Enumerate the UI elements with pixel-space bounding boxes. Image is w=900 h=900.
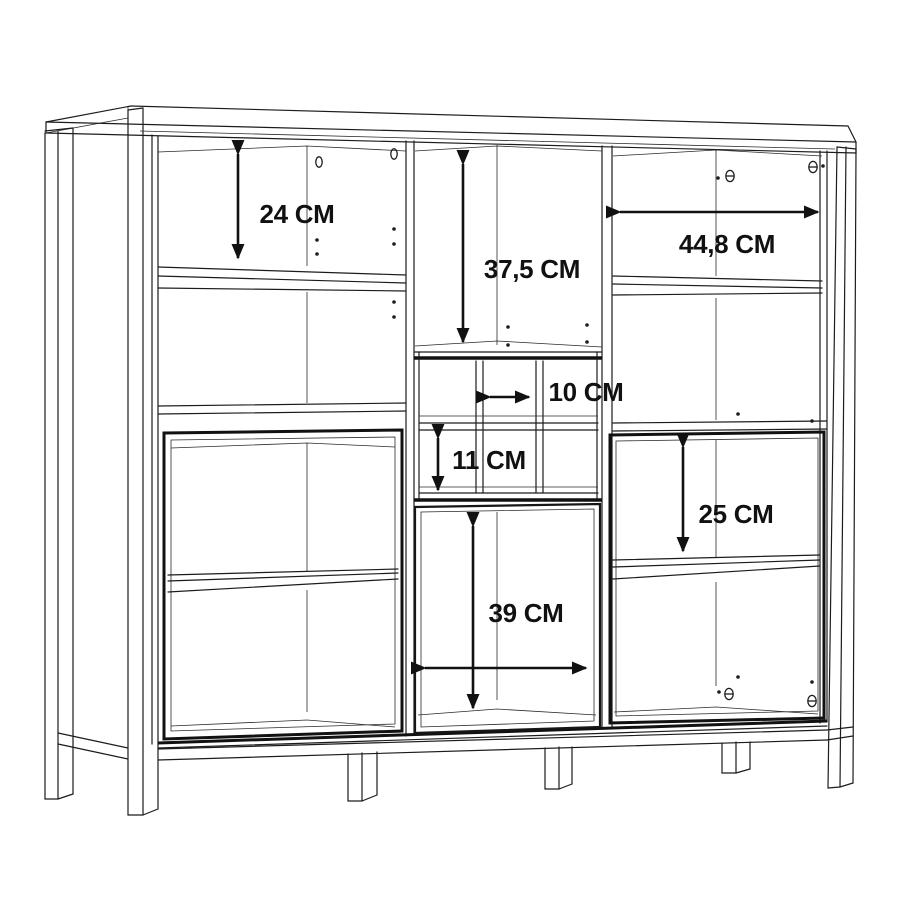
dimension-label-24cm: 24 CM xyxy=(259,199,334,229)
dimension-label-11cm: 11 CM xyxy=(452,445,526,475)
cabinet-dimension-drawing: 24 CM 37,5 CM 44,8 CM 10 CM 11 CM 25 CM … xyxy=(0,0,900,900)
dimension-label-39cm: 39 CM xyxy=(488,598,563,628)
dimension-label-44-8cm: 44,8 CM xyxy=(679,229,775,259)
dimension-label-25cm: 25 CM xyxy=(698,499,773,529)
dimension-label-37-5cm: 37,5 CM xyxy=(484,254,580,284)
dimension-label-10cm: 10 CM xyxy=(548,377,623,407)
diagram-canvas: 24 CM 37,5 CM 44,8 CM 10 CM 11 CM 25 CM … xyxy=(0,0,900,900)
